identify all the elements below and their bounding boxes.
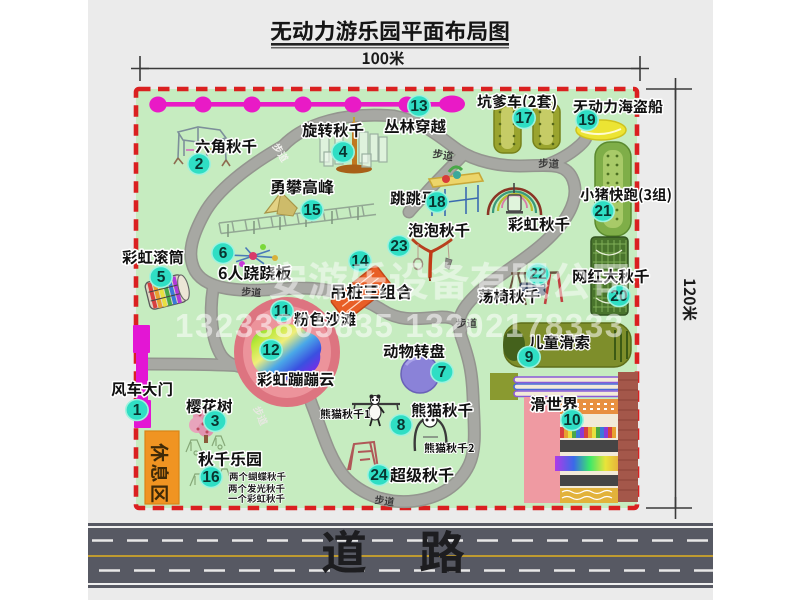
- svg-text:8: 8: [397, 417, 406, 434]
- svg-text:7: 7: [438, 364, 447, 381]
- svg-text:1: 1: [133, 402, 142, 419]
- svg-text:17: 17: [515, 110, 532, 127]
- svg-text:21: 21: [594, 203, 612, 220]
- svg-text:9: 9: [525, 349, 534, 366]
- svg-text:6: 6: [219, 245, 228, 262]
- svg-text:5: 5: [157, 269, 166, 286]
- svg-text:3: 3: [211, 413, 220, 430]
- svg-text:24: 24: [370, 467, 388, 484]
- svg-text:15: 15: [303, 202, 321, 219]
- svg-text:16: 16: [202, 469, 220, 486]
- svg-text:23: 23: [390, 238, 408, 255]
- svg-text:2: 2: [195, 156, 204, 173]
- svg-text:18: 18: [428, 194, 446, 211]
- svg-text:19: 19: [578, 112, 596, 129]
- svg-text:13233805835 13202178333: 13233805835 13202178333: [175, 307, 625, 344]
- svg-text:10: 10: [563, 412, 580, 429]
- svg-text:13: 13: [410, 98, 428, 115]
- svg-text:4: 4: [339, 144, 348, 161]
- svg-text:12: 12: [262, 342, 279, 359]
